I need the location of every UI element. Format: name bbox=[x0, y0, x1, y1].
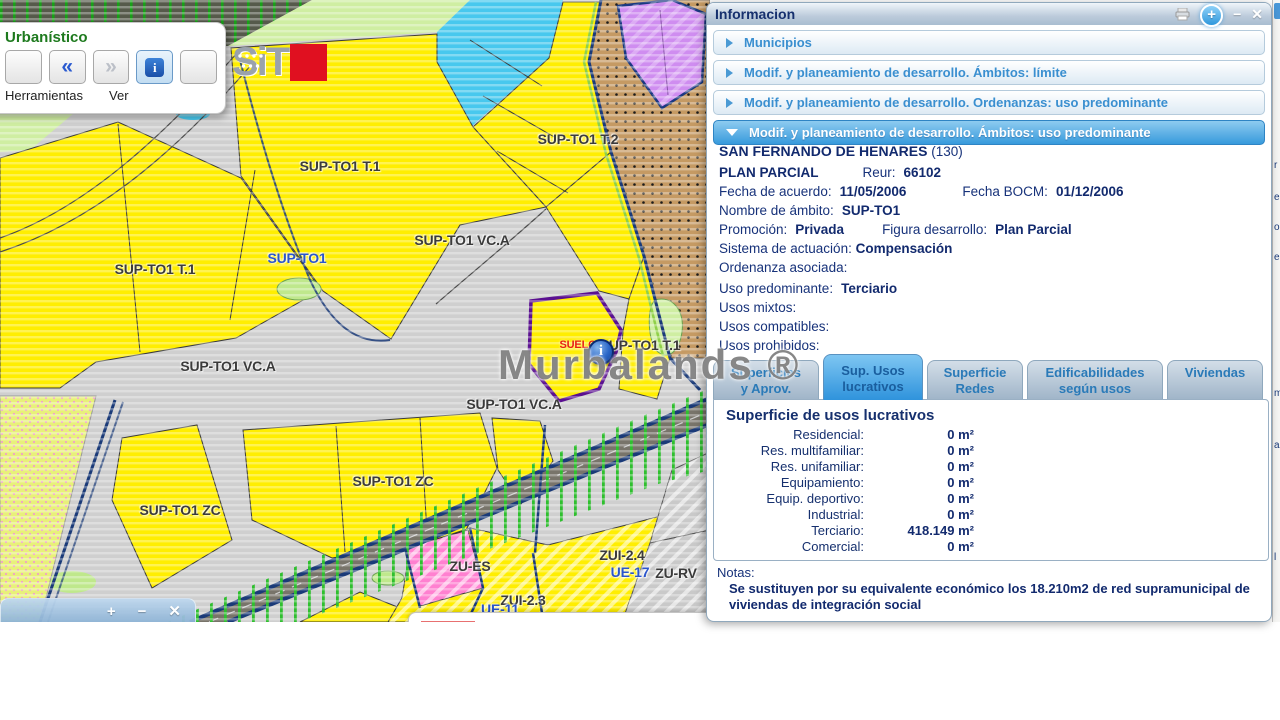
table-row: Res. multifamiliar:0 m² bbox=[714, 443, 1268, 459]
info-marker-icon[interactable]: i bbox=[588, 339, 614, 365]
tab-content-box: Superficie de usos lucrativos Residencia… bbox=[713, 399, 1269, 561]
zoom-extent-button[interactable] bbox=[5, 50, 42, 84]
map-zone-label: ZUI-2.4 bbox=[599, 547, 644, 563]
accordion-item-2[interactable]: Modif. y planeamiento de desarrollo. Ord… bbox=[713, 90, 1265, 115]
panel-close-button[interactable]: ✕ bbox=[1251, 5, 1263, 23]
clipped-text-fragment: m bbox=[1274, 388, 1280, 399]
info-icon: i bbox=[145, 58, 164, 77]
table-title: Superficie de usos lucrativos bbox=[726, 407, 1268, 424]
informacion-panel: Informacion + − ✕ MunicipiosModif. y pla… bbox=[706, 2, 1272, 622]
accordion-list: MunicipiosModif. y planeamiento de desar… bbox=[707, 25, 1271, 149]
madrid-flag-icon bbox=[290, 44, 327, 81]
chevron-right-icon bbox=[726, 98, 733, 108]
municipality-code: (130) bbox=[931, 144, 963, 159]
info-button[interactable]: i bbox=[136, 50, 173, 84]
clipped-text-fragment: o bbox=[1274, 222, 1280, 233]
table-row: Equip. deportivo:0 m² bbox=[714, 491, 1268, 507]
plan-type: PLAN PARCIAL bbox=[719, 165, 819, 180]
forward-chevrons-icon: » bbox=[105, 57, 117, 77]
accordion-item-3[interactable]: Modif. y planeamiento de desarrollo. Ámb… bbox=[713, 120, 1265, 145]
map-mini-toolbar: + − ✕ bbox=[0, 598, 196, 622]
tab-sup-usos[interactable]: Sup. Usoslucrativos bbox=[823, 354, 923, 400]
map-zone-label: SUP-TO1 VC.A bbox=[414, 232, 509, 248]
notes-label: Notas: bbox=[717, 565, 1262, 581]
back-chevrons-icon: « bbox=[61, 57, 73, 77]
panel-titlebar[interactable]: Informacion + − ✕ bbox=[707, 3, 1271, 25]
background-panel-tab bbox=[1274, 3, 1280, 19]
tab-superficies[interactable]: Superficiesy Aprov. bbox=[713, 360, 819, 400]
accordion-item-label: Modif. y planeamiento de desarrollo. Ámb… bbox=[744, 65, 1067, 80]
sit-logo: SiT bbox=[232, 44, 327, 81]
ver-label[interactable]: Ver bbox=[109, 88, 129, 103]
chevron-right-icon bbox=[726, 68, 733, 78]
panel-add-button[interactable]: + bbox=[1200, 4, 1223, 27]
municipality-name: SAN FERNANDO DE HENARES bbox=[719, 143, 927, 159]
chevron-down-icon bbox=[726, 129, 738, 136]
herramientas-label: Herramientas bbox=[5, 88, 83, 103]
map-zone-label: SUP-TO1 ZC bbox=[140, 502, 221, 518]
tab-superficie[interactable]: SuperficieRedes bbox=[927, 360, 1023, 400]
detail-section: SAN FERNANDO DE HENARES (130) PLAN PARCI… bbox=[719, 143, 1264, 356]
panel-title: Informacion bbox=[715, 6, 1175, 22]
map-zoom-out-button[interactable]: − bbox=[138, 603, 147, 620]
panel-minimize-button[interactable]: − bbox=[1233, 5, 1241, 23]
map-zone-label: SUP-TO1 VC.A bbox=[466, 396, 561, 412]
map-zone-label: SUP-TO1 T.1 bbox=[115, 261, 196, 277]
clipped-text-fragment: l bbox=[1274, 552, 1276, 563]
map-toolbar-close-button[interactable]: ✕ bbox=[168, 602, 181, 620]
map-zone-label: SUP-TO1 bbox=[267, 250, 326, 266]
map-zone-label: SUP-TO1 T.1 bbox=[300, 158, 381, 174]
table-row: Equipamiento:0 m² bbox=[714, 475, 1268, 491]
clipped-text-fragment: r bbox=[1274, 160, 1277, 171]
accordion-item-0[interactable]: Municipios bbox=[713, 30, 1265, 55]
next-button[interactable]: » bbox=[93, 50, 130, 84]
tools-panel: Urbanístico « » bbox=[0, 22, 226, 114]
table-row: Res. unifamiliar:0 m² bbox=[714, 459, 1268, 475]
tab-viviendas[interactable]: Viviendas bbox=[1167, 360, 1263, 400]
map-zone-label: UE-17 bbox=[611, 564, 650, 580]
chevron-right-icon bbox=[726, 38, 733, 48]
usage-table: Residencial:0 m²Res. multifamiliar:0 m²R… bbox=[714, 427, 1268, 555]
map-zone-label: ZU-RV bbox=[655, 565, 697, 581]
table-row: Comercial:0 m² bbox=[714, 539, 1268, 555]
clipped-text-fragment: a bbox=[1274, 440, 1280, 451]
notes-section: Notas: Se sustituyen por su equivalente … bbox=[717, 565, 1262, 613]
tab-edificabilidades[interactable]: Edificabilidadessegún usos bbox=[1027, 360, 1163, 400]
clipped-text-fragment: e bbox=[1274, 252, 1280, 263]
background-panel-edge: reoemal bbox=[1272, 0, 1280, 622]
map-viewport[interactable]: SUP-TO1 T.1SUP-TO1 T.2SUP-TO1 T.1SUP-TO1… bbox=[0, 0, 710, 622]
clipped-text-fragment: e bbox=[1274, 192, 1280, 203]
map-zone-label: SUP-TO1 ZC bbox=[353, 473, 434, 489]
map-zoom-in-button[interactable]: + bbox=[107, 603, 116, 620]
accordion-item-1[interactable]: Modif. y planeamiento de desarrollo. Ámb… bbox=[713, 60, 1265, 85]
map-zone-label: ZU-ES bbox=[449, 558, 490, 574]
print-icon[interactable] bbox=[1175, 8, 1190, 21]
download-button[interactable] bbox=[180, 50, 217, 84]
bottom-popup bbox=[408, 612, 710, 622]
tab-bar: Superficiesy Aprov.Sup. UsoslucrativosSu… bbox=[713, 354, 1263, 400]
table-row: Industrial:0 m² bbox=[714, 507, 1268, 523]
map-zone-label: SUP-TO1 T.2 bbox=[538, 131, 619, 147]
map-zone-label: SUP-TO1 VC.A bbox=[180, 358, 275, 374]
accordion-item-label: Municipios bbox=[744, 35, 812, 50]
accordion-item-label: Modif. y planeamiento de desarrollo. Ámb… bbox=[749, 125, 1151, 140]
accordion-item-label: Modif. y planeamiento de desarrollo. Ord… bbox=[744, 95, 1168, 110]
previous-button[interactable]: « bbox=[49, 50, 86, 84]
application-window: SUP-TO1 T.1SUP-TO1 T.2SUP-TO1 T.1SUP-TO1… bbox=[0, 0, 1280, 720]
table-row: Terciario:418.149 m² bbox=[714, 523, 1268, 539]
tools-panel-title: Urbanístico bbox=[5, 29, 217, 46]
table-row: Residencial:0 m² bbox=[714, 427, 1268, 443]
bottom-popup-field bbox=[421, 621, 475, 622]
notes-text: Se sustituyen por su equivalente económi… bbox=[729, 581, 1262, 613]
